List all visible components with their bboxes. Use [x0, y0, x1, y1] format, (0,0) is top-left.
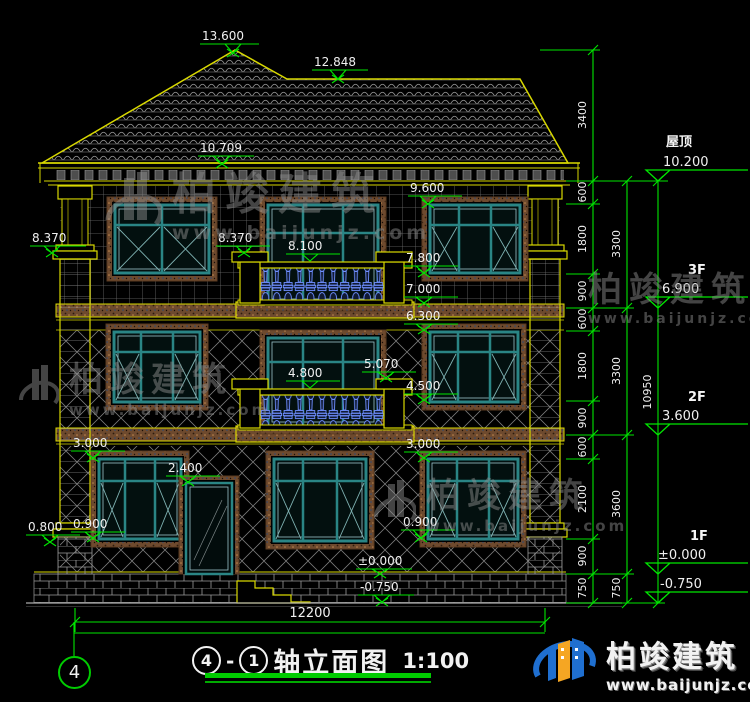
title-scale: 1:100: [402, 649, 469, 673]
level-name: 屋顶: [666, 135, 692, 150]
mark-text: 3.000: [73, 436, 107, 450]
level-elev: 3.600: [662, 409, 699, 424]
mark-text: 0.800: [28, 520, 62, 534]
post-cap-2f-left: [232, 379, 268, 389]
window-3f-right: [422, 197, 528, 281]
mark-text: 13.600: [202, 29, 244, 43]
level-roof: 屋顶 10.200: [646, 135, 748, 181]
dim-text: 3300: [610, 357, 623, 385]
mark-text: 10.709: [200, 141, 242, 155]
window-1f-center: [266, 451, 374, 549]
mark-text: 4.500: [406, 379, 440, 393]
level-elev: ±0.000: [658, 548, 706, 563]
window-3f-left: [107, 197, 217, 281]
mark-text: 2.400: [168, 461, 202, 475]
dim-text: 1800: [576, 352, 589, 380]
dim-text: 600: [576, 437, 589, 458]
mark-text: 0.900: [73, 517, 107, 531]
post-2f-right: [384, 389, 404, 428]
dim-text: 750: [576, 578, 589, 599]
dentil-row: [52, 170, 564, 180]
brand-logo: 柏竣建筑 www.baijunjz.com: [528, 626, 750, 700]
mark-text: 8.370: [218, 231, 252, 245]
post-3f-right: [384, 262, 404, 303]
dim-text: 900: [576, 281, 589, 302]
column-right-base: [526, 523, 564, 529]
level-elev: -0.750: [660, 577, 702, 592]
mark-text: 8.370: [32, 231, 66, 245]
level-1f: 1F ±0.000: [646, 529, 748, 574]
mark-text: -0.750: [360, 580, 399, 594]
axis-circle-from: 4: [192, 646, 221, 675]
level-name: 2F: [688, 390, 706, 405]
axis-bubble-label: 4: [69, 662, 80, 683]
dim-text: 3400: [576, 101, 589, 129]
axis-to-label: 1: [248, 651, 259, 670]
window-2f-left: [106, 324, 208, 410]
mark-text: 7.800: [406, 251, 440, 265]
roof: [38, 50, 580, 185]
dim-text: 3600: [610, 490, 623, 518]
column-left-pedestal: [58, 537, 92, 574]
cornice-lines: [44, 181, 574, 185]
axis-from-label: 4: [201, 651, 212, 670]
column-right-capital: [526, 245, 564, 251]
post-2f-left: [240, 389, 260, 428]
mark-text: ±0.000: [358, 554, 402, 568]
brand-logo-icon: [528, 626, 600, 700]
axis-bubble: 4: [58, 656, 91, 689]
brand-logo-url: www.baijunjz.com: [606, 676, 750, 694]
balusters-3f: [246, 268, 404, 300]
brand-logo-text: 柏竣建筑: [606, 632, 750, 676]
plinth-brick: [34, 574, 566, 603]
mark-text: 9.600: [410, 181, 444, 195]
dim-text: 600: [576, 309, 589, 330]
axis-circle-to: 1: [239, 646, 268, 675]
title-dash: -: [226, 649, 234, 673]
level-name: 1F: [690, 529, 708, 544]
level-3f: 3F 6.900: [646, 263, 748, 308]
window-2f-right: [422, 324, 526, 410]
roof-surface: [42, 50, 568, 163]
title-underline-thin: [205, 681, 431, 683]
mark-text: 0.900: [403, 515, 437, 529]
level-grade: -0.750: [646, 577, 748, 603]
dim-text: 750: [610, 578, 623, 599]
dim-text: 600: [576, 182, 589, 203]
mark-text: 12.848: [314, 55, 356, 69]
mark-text: 5.070: [364, 357, 398, 371]
title-underline-thick: [205, 673, 431, 678]
elevation-drawing: 3400 600 1800 900 600 1800 900 600 2100 …: [0, 0, 750, 702]
level-name: 3F: [688, 263, 706, 278]
level-elev: 6.900: [662, 282, 699, 297]
dim-text: 3300: [610, 230, 623, 258]
floor-level-markers: 屋顶 10.200 3F 6.900 2F 3.600 1F ±0.000 -0…: [646, 135, 748, 603]
overall-width: 12200: [289, 606, 330, 621]
dim-text: 900: [576, 408, 589, 429]
mark-text: 6.300: [406, 309, 440, 323]
dim-lines: [593, 50, 658, 603]
window-1f-right: [420, 451, 526, 547]
dim-text: 900: [576, 546, 589, 567]
level-2f: 2F 3.600: [646, 390, 748, 435]
column-right-shaft: [530, 259, 560, 523]
dim-text-total: 10950: [641, 375, 654, 410]
entrance-door: [179, 476, 239, 574]
cad-canvas: 3400 600 1800 900 600 1800 900 600 2100 …: [0, 0, 750, 702]
level-elev: 10.200: [663, 155, 709, 170]
plinth: [26, 572, 622, 607]
mark-text: 7.000: [406, 282, 440, 296]
mark-text: 4.800: [288, 366, 322, 380]
post-3f-left: [240, 262, 260, 303]
dim-text: 2100: [576, 485, 589, 513]
mark-text: 8.100: [288, 239, 322, 253]
dim-text: 1800: [576, 225, 589, 253]
column-right-pedestal: [528, 537, 562, 574]
column-left-shaft: [60, 259, 90, 523]
balusters-2f: [246, 395, 404, 425]
mark-text: 3.000: [406, 437, 440, 451]
